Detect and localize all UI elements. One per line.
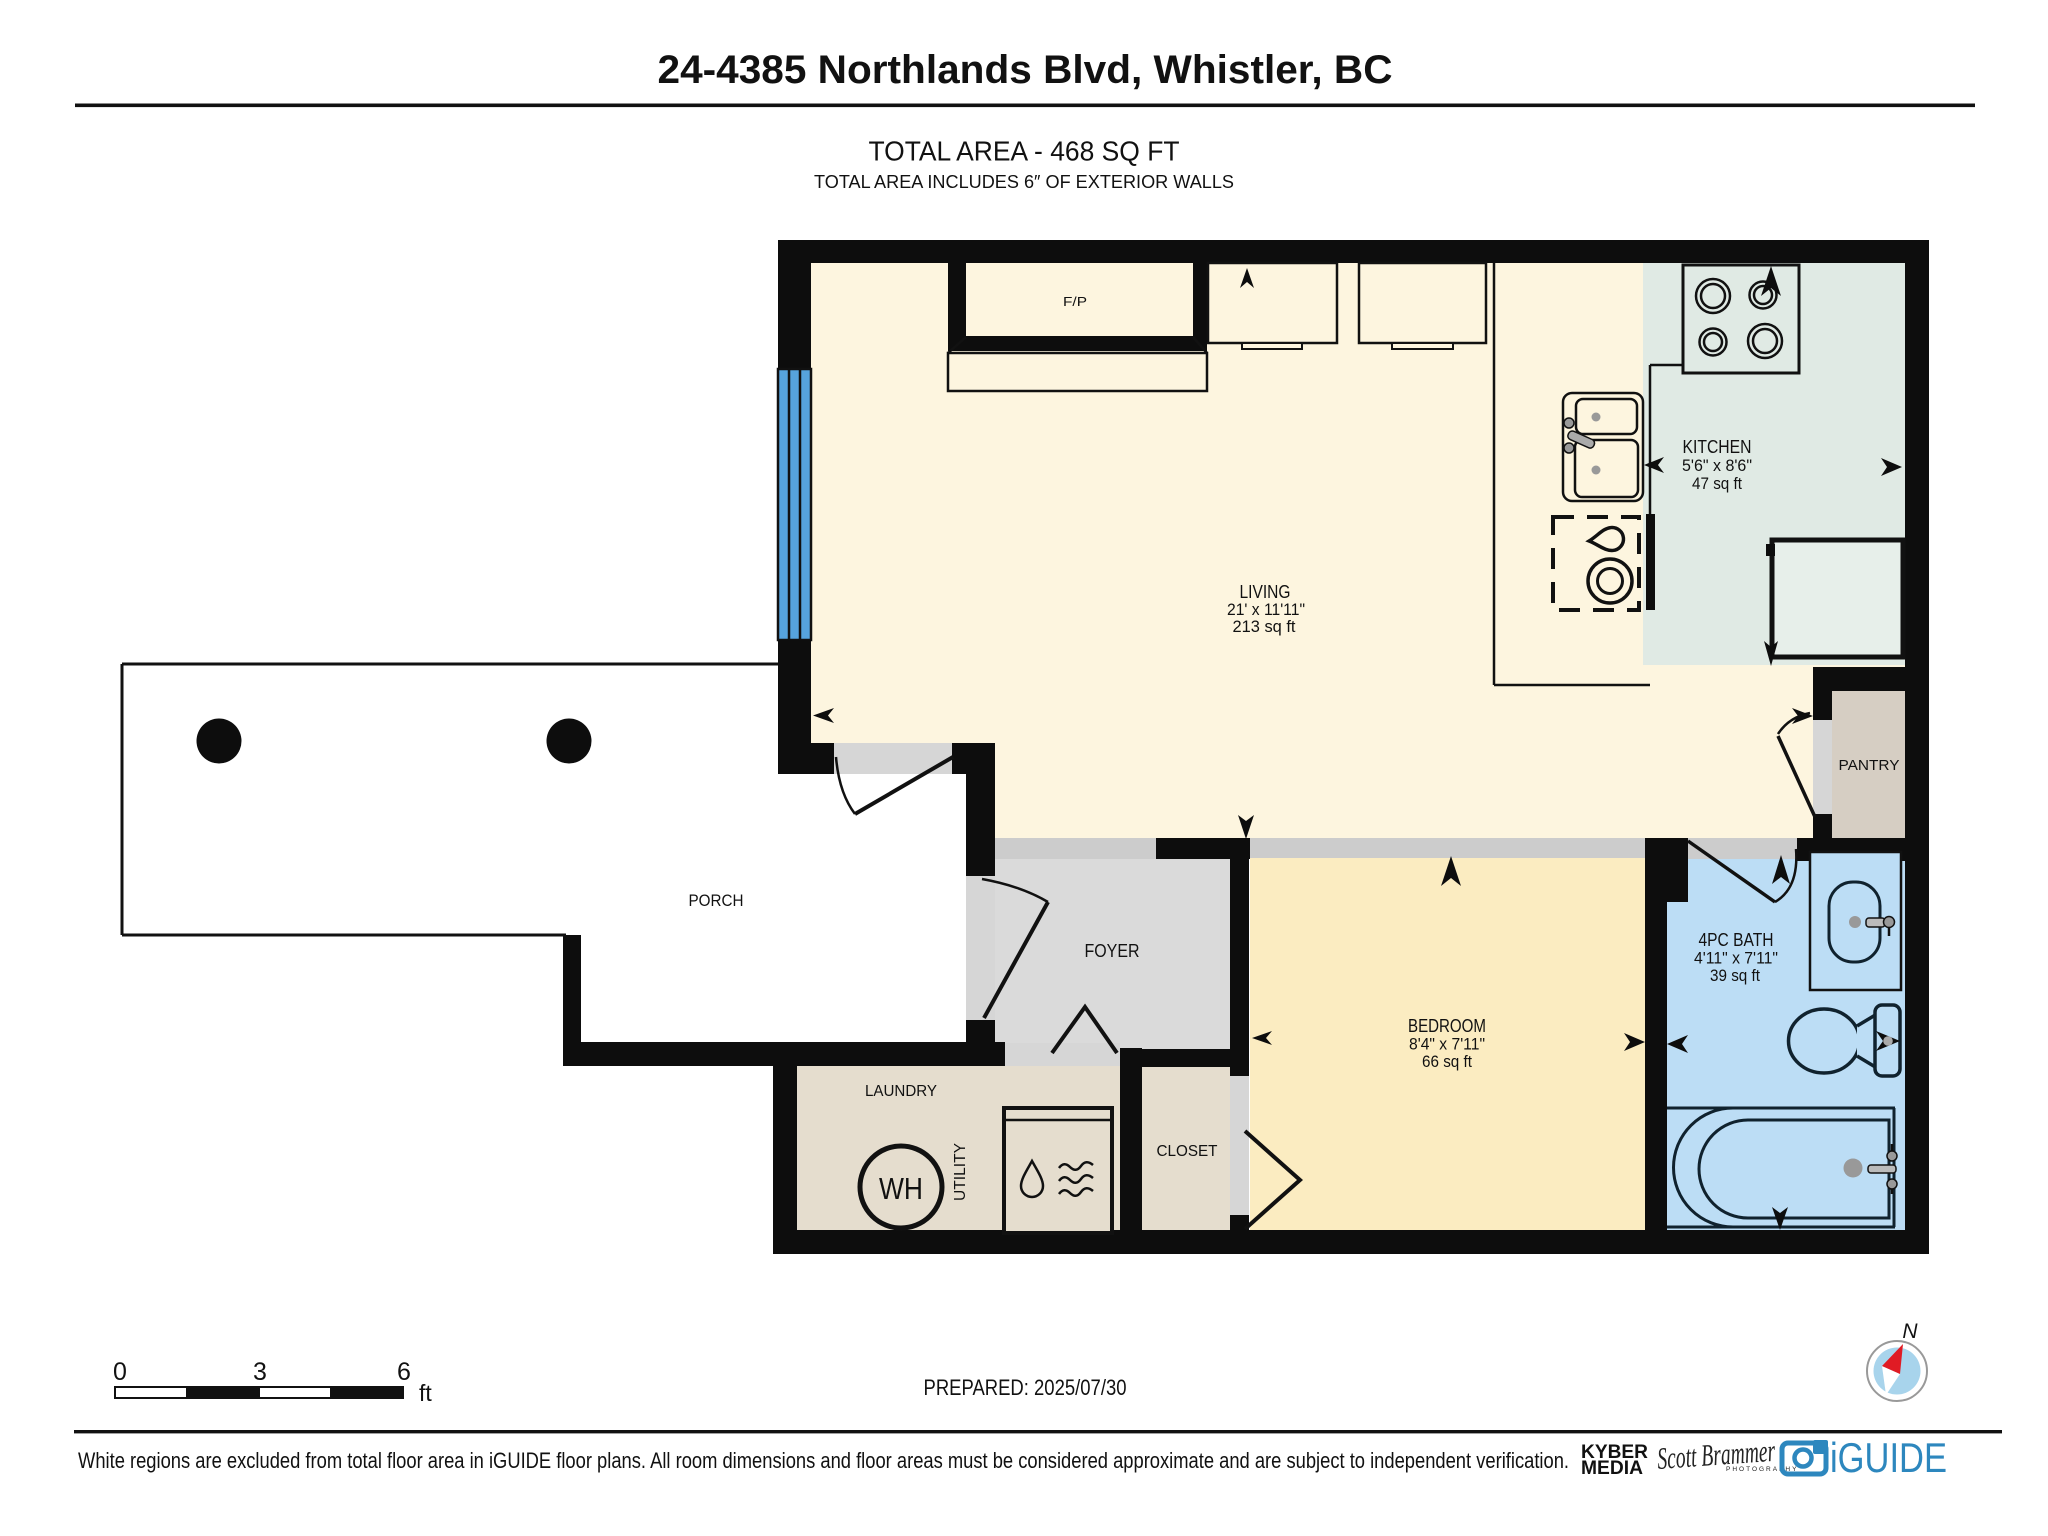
- svg-text:KITCHEN: KITCHEN: [1683, 437, 1752, 457]
- svg-text:F/P: F/P: [1063, 294, 1087, 309]
- svg-text:6: 6: [397, 1358, 411, 1386]
- svg-text:4PC BATH: 4PC BATH: [1699, 930, 1774, 950]
- svg-text:iGUIDE: iGUIDE: [1830, 1434, 1947, 1481]
- svg-text:FOYER: FOYER: [1085, 941, 1140, 961]
- svg-text:LIVING: LIVING: [1240, 582, 1291, 602]
- svg-text:PREPARED: 2025/07/30: PREPARED: 2025/07/30: [924, 1375, 1127, 1400]
- svg-text:PORCH: PORCH: [689, 891, 744, 910]
- svg-text:UTILITY: UTILITY: [952, 1143, 969, 1201]
- svg-text:3: 3: [253, 1358, 267, 1386]
- svg-text:213 sq ft: 213 sq ft: [1233, 618, 1296, 636]
- svg-text:N: N: [1902, 1320, 1918, 1343]
- svg-text:LAUNDRY: LAUNDRY: [865, 1083, 937, 1100]
- svg-text:BEDROOM: BEDROOM: [1408, 1016, 1486, 1036]
- svg-text:5'6" x 8'6": 5'6" x 8'6": [1682, 457, 1752, 475]
- svg-text:PANTRY: PANTRY: [1839, 757, 1900, 774]
- svg-text:ft: ft: [419, 1380, 432, 1406]
- svg-text:39 sq ft: 39 sq ft: [1710, 967, 1760, 985]
- svg-text:MEDIA: MEDIA: [1581, 1458, 1643, 1479]
- svg-text:21' x 11'11": 21' x 11'11": [1227, 601, 1305, 619]
- svg-text:TOTAL AREA INCLUDES 6″ OF EXTE: TOTAL AREA INCLUDES 6″ OF EXTERIOR WALLS: [814, 171, 1234, 192]
- svg-text:24-4385 Northlands Blvd, Whist: 24-4385 Northlands Blvd, Whistler, BC: [658, 48, 1393, 92]
- svg-text:CLOSET: CLOSET: [1157, 1143, 1218, 1160]
- svg-text:66 sq ft: 66 sq ft: [1422, 1053, 1472, 1071]
- svg-text:TOTAL AREA - 468 SQ FT: TOTAL AREA - 468 SQ FT: [869, 136, 1180, 167]
- svg-text:White regions are excluded fro: White regions are excluded from total fl…: [78, 1448, 1569, 1473]
- svg-text:4'11" x 7'11": 4'11" x 7'11": [1694, 950, 1778, 968]
- svg-text:WH: WH: [879, 1171, 923, 1206]
- svg-text:47 sq ft: 47 sq ft: [1692, 475, 1742, 493]
- svg-text:0: 0: [113, 1358, 127, 1386]
- svg-text:8'4" x 7'11": 8'4" x 7'11": [1409, 1036, 1485, 1054]
